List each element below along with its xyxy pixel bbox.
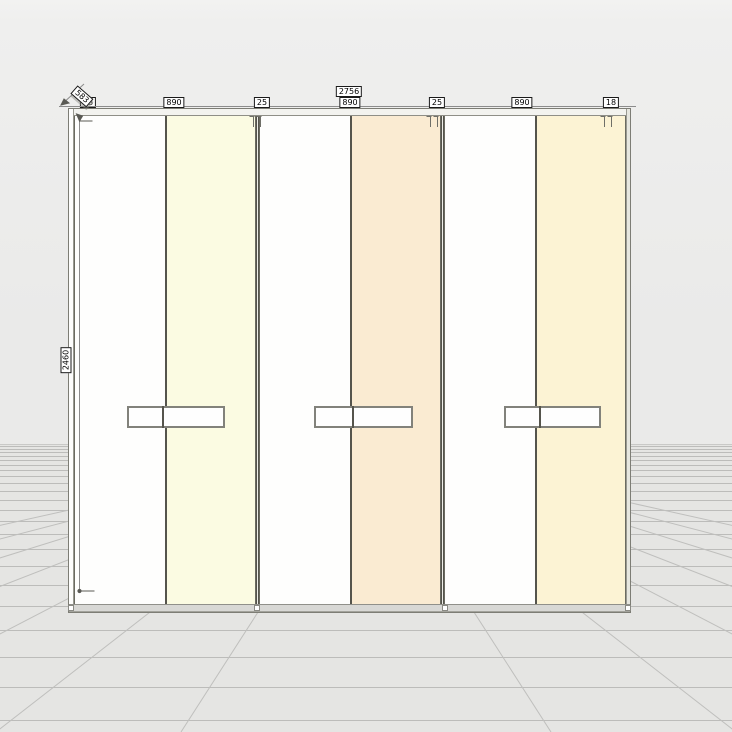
dim-label-segment-4: 25 [429, 97, 445, 108]
dim-label-total-width: 2756 [336, 86, 362, 97]
wardrobe-door-5[interactable] [445, 116, 535, 604]
dim-label-height: 2460 [61, 347, 72, 373]
dim-label-segment-6: 18 [603, 97, 619, 108]
wardrobe-plinth [69, 604, 630, 612]
wardrobe-foot [68, 605, 74, 611]
wardrobe-door-4[interactable] [350, 116, 440, 604]
wardrobe-door-6[interactable] [535, 116, 625, 604]
dim-label-segment-3: 890 [339, 97, 360, 108]
wardrobe-door-2[interactable] [165, 116, 255, 604]
wardrobe-door-3[interactable] [260, 116, 350, 604]
wardrobe-foot [442, 605, 448, 611]
door-handle-2[interactable] [314, 406, 413, 428]
handle-divider-line [539, 406, 541, 428]
dim-label-segment-1: 890 [163, 97, 184, 108]
wardrobe[interactable] [68, 108, 631, 613]
door-handle-1[interactable] [127, 406, 225, 428]
wardrobe-right-side-panel [626, 109, 630, 604]
wardrobe-foot [625, 605, 631, 611]
door-section-3 [444, 116, 626, 604]
wardrobe-foot [254, 605, 260, 611]
dim-label-segment-5: 890 [511, 97, 532, 108]
door-row [74, 116, 626, 604]
handle-divider-line [352, 406, 354, 428]
dim-label-segment-2: 25 [254, 97, 270, 108]
planner-viewport: 2756 890 25 890 25 890 18 18 583 2460 [0, 0, 732, 732]
door-handle-3[interactable] [504, 406, 601, 428]
door-section-2 [259, 116, 441, 604]
handle-divider-line [162, 406, 164, 428]
wardrobe-top-rail [69, 109, 630, 116]
door-section-1 [74, 116, 256, 604]
wardrobe-door-1[interactable] [75, 116, 165, 604]
